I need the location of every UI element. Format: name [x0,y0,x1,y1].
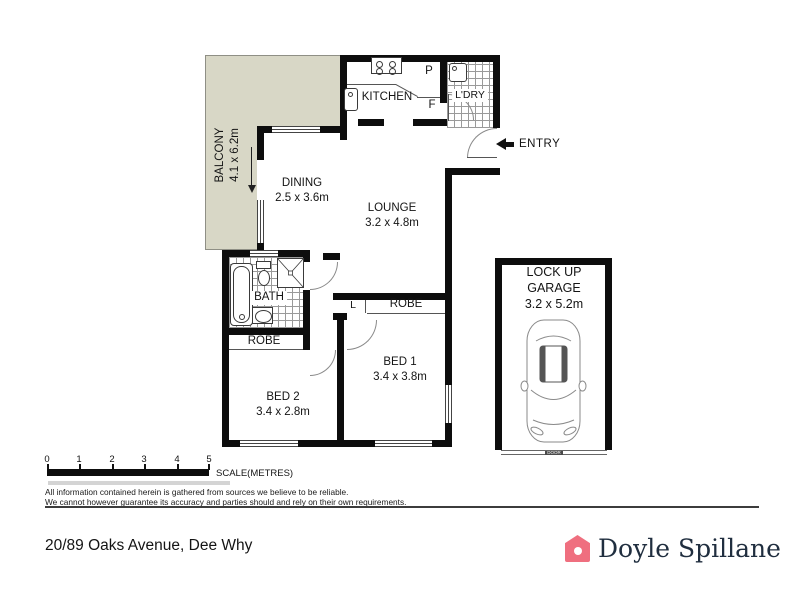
wall-dining-top-a [257,126,272,133]
wall-entry-step [445,168,500,175]
dining-label: DINING [282,178,322,190]
wall-bottom-c [432,440,452,447]
basin-icon [252,307,273,324]
wall-laundry-right [493,55,500,128]
bed2-door-arc [310,350,336,376]
kitchen-sink-icon [344,88,358,111]
entry-door-arc [467,128,497,158]
disclaimer-line-1: All information contained herein is gath… [45,487,348,497]
robe2-front-line [229,349,303,350]
scale-bar [47,469,209,476]
wall-kitchen-top [340,55,500,62]
wall-linen-bottom [333,313,347,320]
garage-door-label: DOOR [545,451,563,455]
entry-door-leaf [467,157,497,158]
wall-bath-bottom [229,328,310,335]
stove-icon [371,57,402,74]
fridge-label: F [428,100,435,112]
linen-right-line [365,300,366,313]
window-bed2 [240,440,298,447]
garage-door-line: DOOR [501,450,607,455]
car-icon [520,316,587,446]
window-bed1 [375,440,432,447]
balcony-name: BALCONY [215,128,227,183]
dining-dims: 2.5 x 3.6m [275,193,329,205]
wall-dining-left-a [257,133,264,160]
agency-logo: Doyle Spillane [565,534,765,564]
wall-bed-divider [337,320,344,440]
bed1-door-arc [347,320,377,350]
kitchen-counter-line-c [417,97,440,98]
bed2-label: BED 2 [266,392,299,404]
scale-underline [48,481,230,485]
wall-bottom-b [298,440,375,447]
balcony-arrow-shaft [251,147,252,185]
laundry-tub-icon [449,63,467,82]
bed1-dims: 3.4 x 3.8m [373,372,427,384]
robe1-front-line [367,313,445,314]
kitchen-counter-line-a [347,84,396,85]
toilet-tank-icon [256,261,271,269]
laundry-label: L'DRY [452,89,488,102]
linen-label: L [350,300,356,311]
window-dining-left [257,200,264,243]
wall-bath-right-b [303,290,310,328]
wall-kitchen-laundry [440,55,447,103]
window-bath-top [250,250,278,257]
house-icon [565,535,590,562]
shower-icon [277,258,304,288]
wall-right-upper [445,168,452,385]
garage-label-1: LOCK UP [527,266,582,279]
window-dining-top [272,126,320,133]
wall-hall-stub [323,253,340,260]
balcony-dims: 4.1 x 6.2m [230,128,242,183]
lounge-dims: 3.2 x 4.8m [365,218,419,230]
divider-rule [45,506,759,508]
entry-label: ENTRY [519,139,560,151]
bath-door-arc [310,262,338,290]
wall-dining-left-b [257,243,264,250]
garage-dims: 3.2 x 5.2m [525,298,583,311]
wall-robe2-right [303,328,310,350]
balcony-label: BALCONY 4.1 x 6.2m [215,128,241,183]
lounge-label: LOUNGE [368,203,417,215]
property-address: 20/89 Oaks Avenue, Dee Why [45,538,252,554]
wall-kitchen-bottom-b [413,119,447,126]
kitchen-label: KITCHEN [362,92,412,104]
balcony-area-top [257,55,340,126]
bed2-dims: 3.4 x 2.8m [256,407,310,419]
robe-bed1-label: ROBE [390,299,423,311]
laundry-door-leaf [448,94,449,121]
pantry-label: P [425,66,433,78]
bathtub-icon [230,263,253,326]
wall-left [222,250,229,447]
bed1-label: BED 1 [383,357,416,369]
garage-label-2: GARAGE [527,282,581,295]
toilet-bowl-icon [258,270,270,286]
wall-bath-right-a [303,250,310,262]
balcony-arrow-icon [248,185,256,193]
scale-label: SCALE(METRES) [216,469,293,479]
window-bed1-right [445,385,452,423]
bath-label: BATH [251,291,287,305]
robe-bed2-label: ROBE [248,336,281,348]
wall-bath-top-a [222,250,250,257]
wall-kitchen-bottom-a [358,119,384,126]
floorplan-page: BALCONY 4.1 x 6.2m [0,0,800,600]
agency-name: Doyle Spillane [598,534,781,564]
entry-arrow-shaft [505,142,514,147]
